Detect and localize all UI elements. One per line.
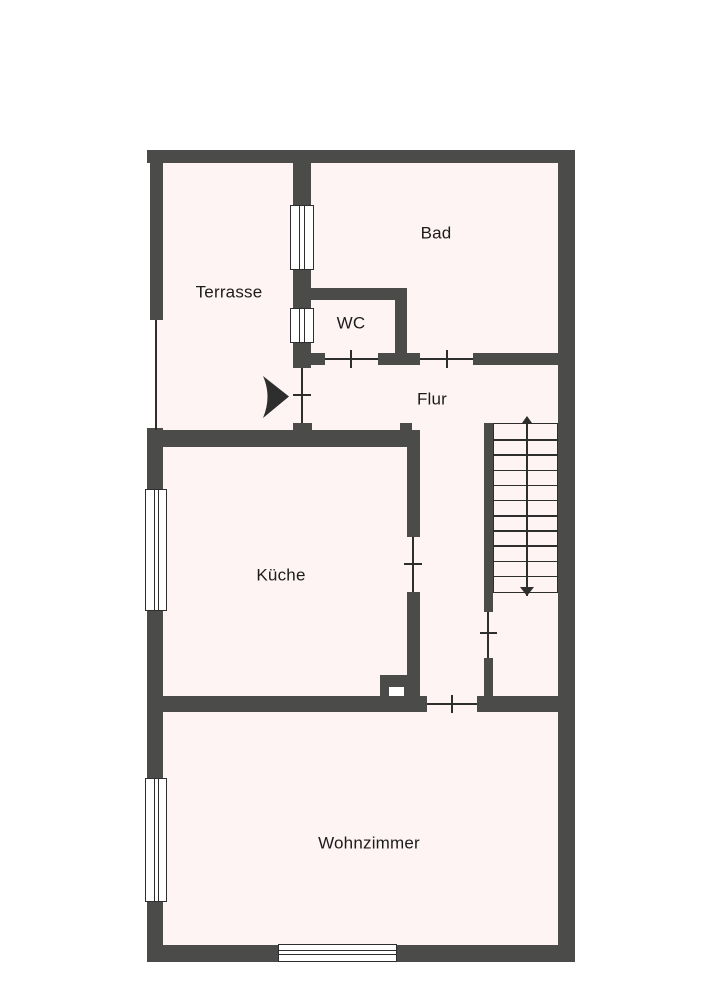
stairs-arrow-down-icon bbox=[520, 587, 534, 596]
wall-wc-top bbox=[305, 288, 407, 300]
window-wohnzimmer-left bbox=[145, 778, 167, 902]
room-label-bad: Bad bbox=[421, 225, 452, 242]
room-label-terrasse: Terrasse bbox=[196, 284, 263, 301]
wall-flur-top-c bbox=[473, 353, 563, 365]
window-terrasse-bad-2 bbox=[290, 308, 314, 343]
room-label-wohnzimmer: Wohnzimmer bbox=[318, 835, 420, 852]
window-wohnzimmer-bottom bbox=[278, 944, 397, 962]
entrance-arrow-icon bbox=[262, 375, 290, 419]
wall-entrance-stub bbox=[293, 423, 312, 431]
room-label-wc: WC bbox=[337, 315, 366, 332]
wall-kueche-top bbox=[147, 430, 420, 447]
stairs-direction-line bbox=[526, 419, 528, 596]
door-tick-entrance bbox=[293, 394, 311, 396]
door-tick-wc bbox=[350, 350, 352, 368]
stairs-arrow-up-icon bbox=[522, 416, 532, 423]
door-tick-kueche bbox=[404, 563, 422, 565]
wall-flur-top-a bbox=[293, 353, 325, 365]
wall-wohnzimmer-top-left bbox=[147, 696, 427, 712]
wall-stairs-left-stub bbox=[484, 658, 493, 712]
wall-outer-top bbox=[147, 150, 575, 163]
door-tick-wohnzimmer bbox=[451, 695, 453, 713]
wall-flur-top-b bbox=[378, 353, 420, 365]
room-label-flur: Flur bbox=[417, 391, 447, 408]
door-tick-bad bbox=[446, 350, 448, 368]
floor-plan: Terrasse Bad WC Flur Küche Wohnzimmer bbox=[0, 0, 706, 1000]
wall-stairs-left bbox=[484, 423, 493, 612]
door-tick-stairs bbox=[480, 632, 497, 634]
window-terrasse-bad-1 bbox=[290, 205, 314, 270]
door-line-stairs bbox=[487, 612, 489, 658]
wall-kueche-right-upper bbox=[407, 430, 420, 537]
terrace-boundary-line bbox=[155, 320, 157, 430]
window-kueche bbox=[145, 489, 167, 611]
room-label-kueche: Küche bbox=[256, 567, 305, 584]
wall-outer-right bbox=[558, 150, 575, 962]
wall-outer-left-upper bbox=[150, 150, 163, 320]
